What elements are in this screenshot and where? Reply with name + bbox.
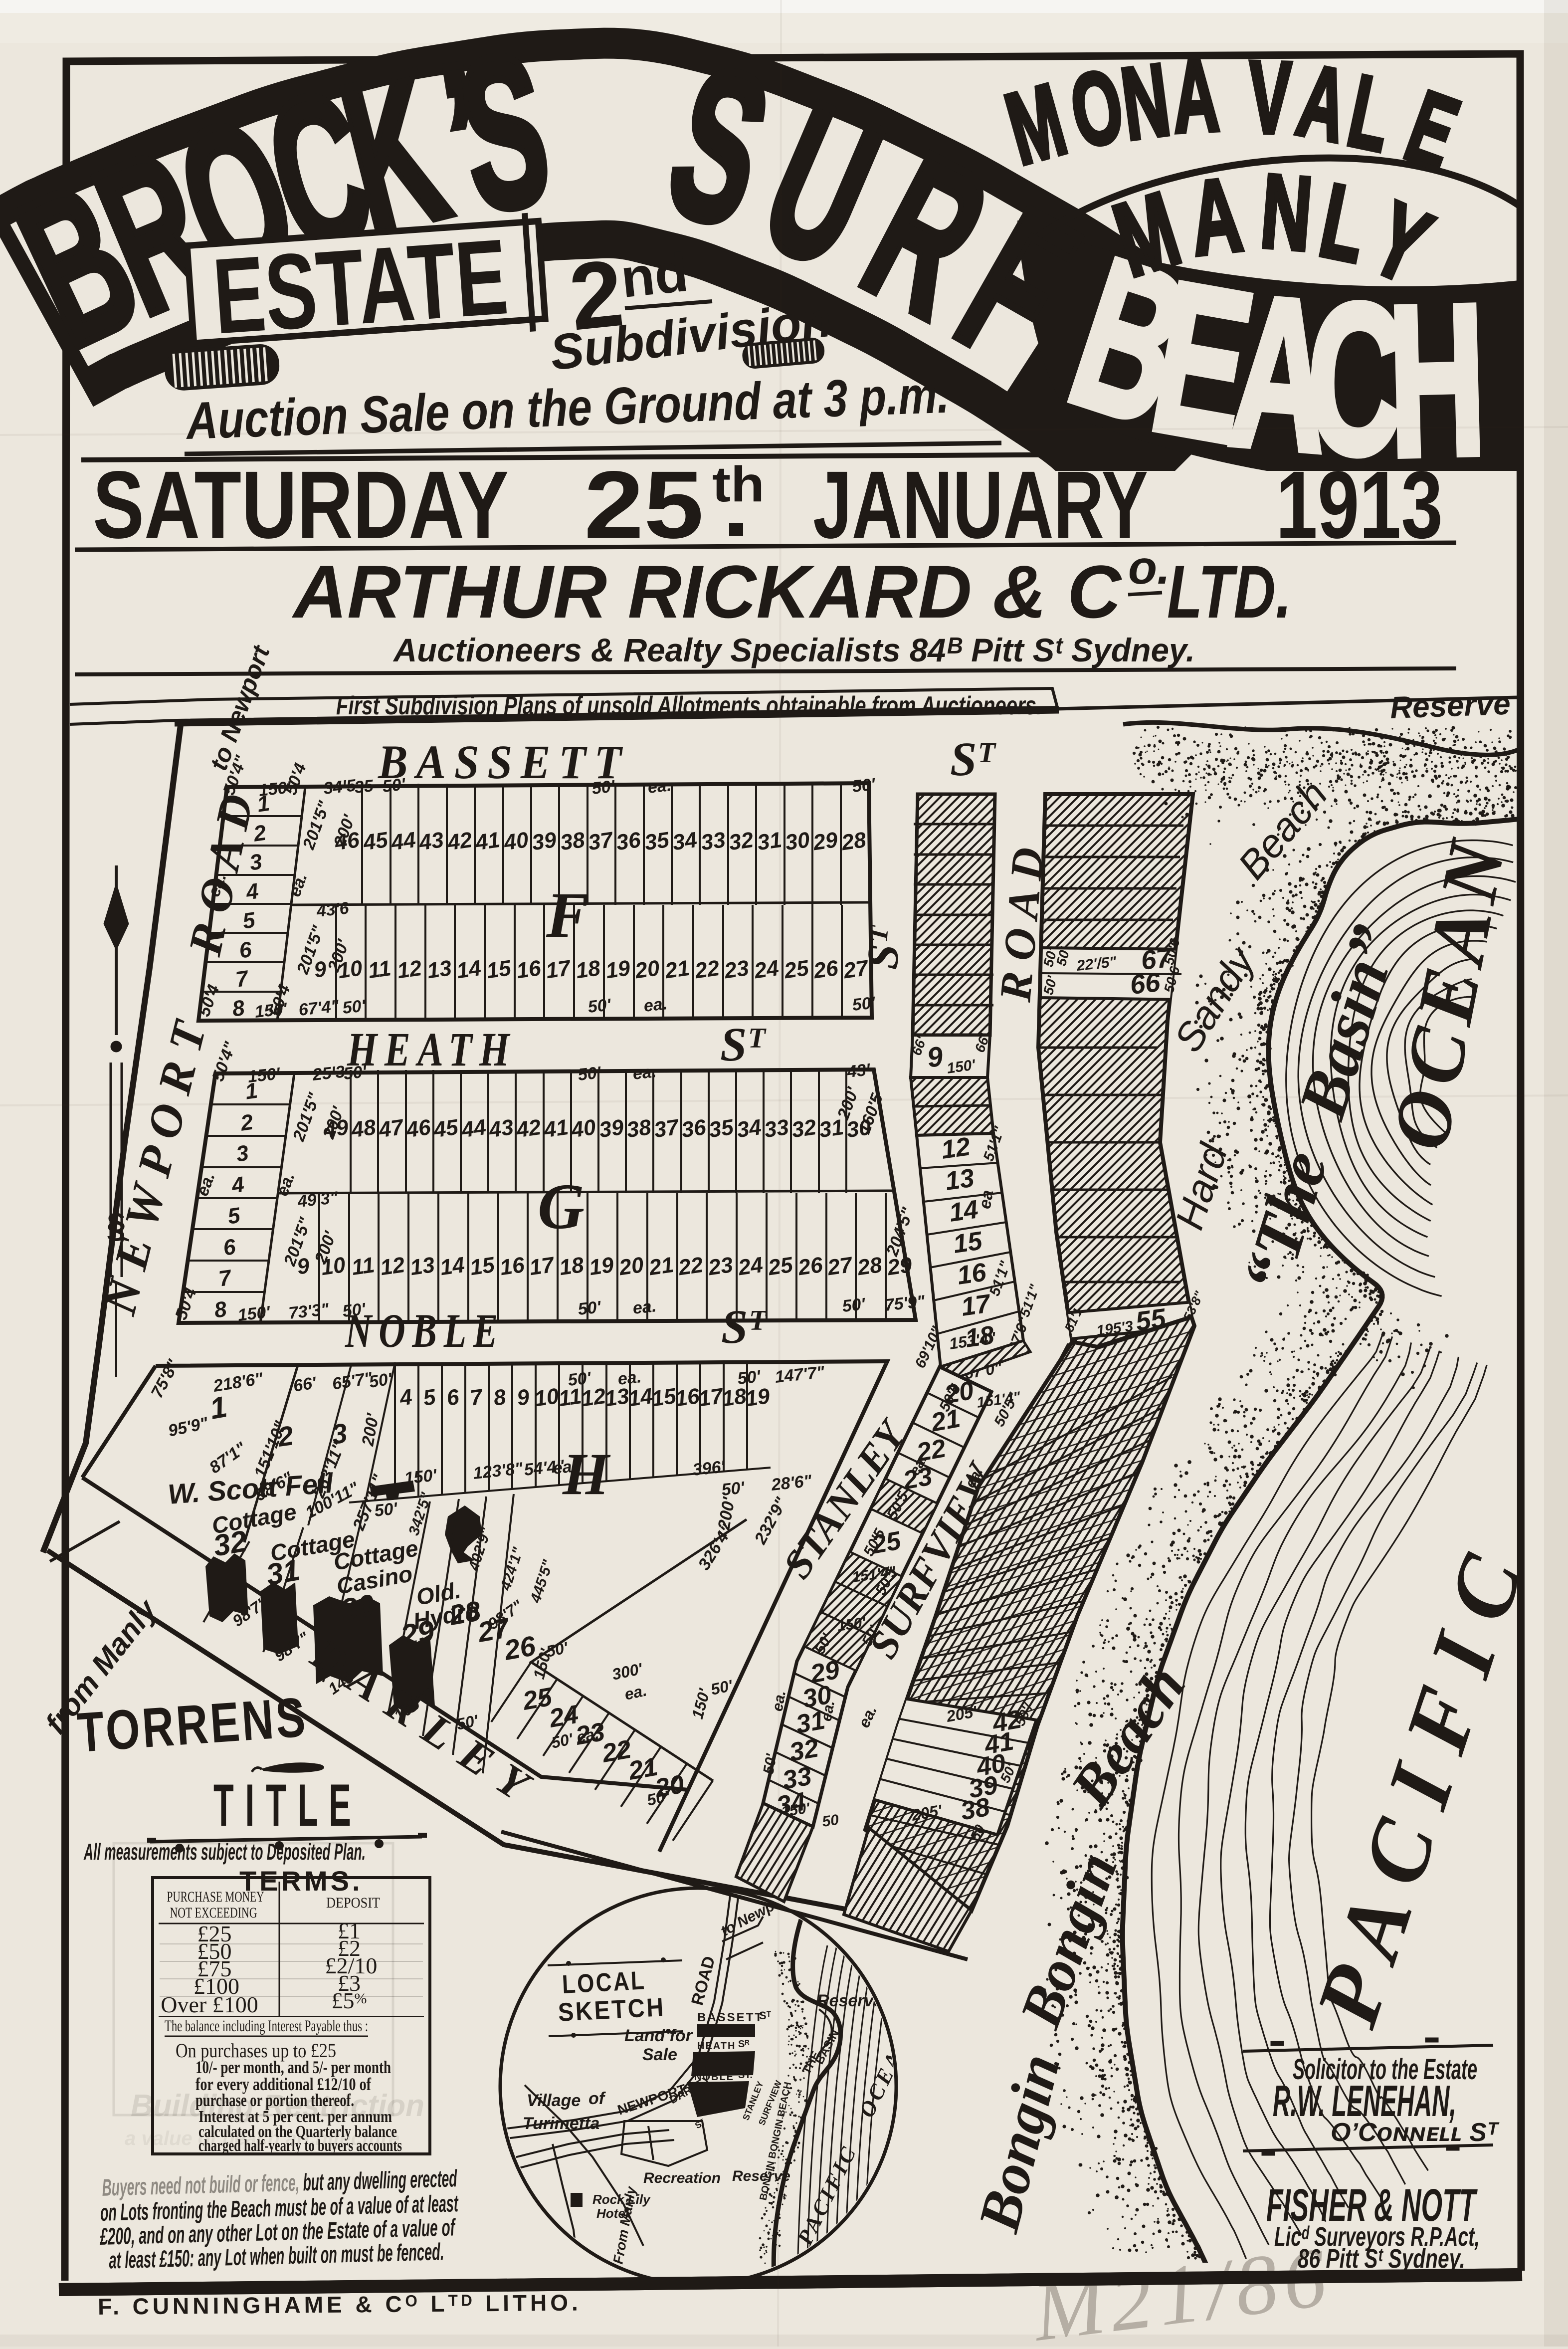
- svg-text:Village: Village: [527, 2091, 581, 2110]
- svg-text:G: G: [538, 1171, 585, 1243]
- svg-text:13: 13: [944, 1163, 976, 1196]
- svg-text:23: 23: [706, 1253, 734, 1280]
- svg-text:ea.: ea.: [643, 994, 668, 1016]
- svg-text:34'5: 34'5: [323, 776, 358, 798]
- svg-text:41: 41: [542, 1115, 570, 1142]
- svg-text:24: 24: [736, 1253, 764, 1280]
- svg-text:Auctioneers & Realty Specialis: Auctioneers & Realty Specialists 84ᴮ Pit…: [392, 632, 1195, 668]
- svg-text:11: 11: [367, 956, 392, 983]
- svg-text:26: 26: [811, 956, 840, 984]
- svg-text:27: 27: [825, 1253, 855, 1281]
- svg-text:ea: ea: [975, 1189, 997, 1211]
- svg-text:§: §: [107, 1206, 126, 1245]
- svg-text:18: 18: [558, 1253, 586, 1280]
- svg-text:47: 47: [377, 1115, 406, 1143]
- svg-text:17: 17: [528, 1253, 557, 1281]
- svg-text:O’Cᴏɴɴᴇʟʟ Sᵀ: O’Cᴏɴɴᴇʟʟ Sᵀ: [1331, 2118, 1500, 2147]
- svg-text:ea.: ea.: [632, 1062, 657, 1083]
- svg-text:13: 13: [408, 1253, 436, 1280]
- svg-text:37: 37: [587, 828, 615, 855]
- svg-text:ea.: ea.: [617, 1367, 642, 1389]
- svg-text:15: 15: [468, 1253, 496, 1280]
- svg-text:38: 38: [625, 1115, 653, 1142]
- svg-text:35: 35: [354, 776, 375, 797]
- svg-text:Sᵀ: Sᵀ: [759, 2009, 772, 2022]
- svg-text:11: 11: [350, 1253, 376, 1280]
- svg-text:46: 46: [404, 1115, 432, 1143]
- svg-text:NOBLE: NOBLE: [345, 1304, 505, 1357]
- svg-text:26: 26: [796, 1253, 824, 1281]
- svg-text:39: 39: [597, 1115, 625, 1142]
- svg-text:39: 39: [530, 828, 558, 855]
- svg-text:18: 18: [574, 956, 602, 983]
- svg-text:22: 22: [693, 956, 721, 984]
- svg-text:30: 30: [339, 1588, 377, 1627]
- svg-text:F: F: [546, 879, 589, 951]
- svg-text:50': 50': [591, 777, 617, 798]
- svg-text:A: A: [1170, 38, 1221, 154]
- svg-text:First Subdivision Plans of uns: First Subdivision Plans of unsold Allotm…: [336, 691, 1042, 720]
- svg-text:396': 396': [692, 1457, 727, 1480]
- svg-text:charged half-yearly to buyers: charged half-yearly to buyers accounts: [198, 2136, 402, 2155]
- svg-text:40: 40: [502, 828, 530, 855]
- svg-text:13: 13: [425, 956, 453, 983]
- svg-text:43'6: 43'6: [315, 898, 351, 921]
- svg-text:25'3: 25'3: [311, 1062, 346, 1084]
- svg-text:50': 50': [841, 1294, 867, 1316]
- svg-text:BASSETT: BASSETT: [697, 2011, 764, 2024]
- svg-text:29: 29: [398, 1614, 437, 1653]
- svg-text:th: th: [712, 456, 765, 512]
- svg-text:44: 44: [389, 828, 417, 855]
- svg-text:14: 14: [455, 956, 482, 983]
- svg-text:17: 17: [960, 1289, 993, 1322]
- svg-text:24: 24: [752, 956, 780, 983]
- svg-text:16: 16: [515, 956, 543, 983]
- svg-text:42: 42: [445, 828, 474, 855]
- svg-text:38: 38: [959, 1792, 992, 1826]
- svg-text:The balance including Interest: The balance including Interest Payable t…: [165, 2017, 368, 2035]
- svg-text:T I T L E: T I T L E: [213, 1772, 352, 1839]
- svg-text:SATURDAY: SATURDAY: [93, 451, 509, 558]
- svg-text:29: 29: [811, 828, 839, 855]
- svg-text:Sᵀ: Sᵀ: [721, 1300, 768, 1353]
- svg-text:50': 50': [851, 775, 877, 796]
- svg-text:Sale: Sale: [642, 2045, 677, 2064]
- svg-text:N: N: [1257, 152, 1316, 273]
- svg-text:150': 150': [247, 1064, 282, 1086]
- svg-text:36: 36: [680, 1115, 708, 1142]
- svg-text:40: 40: [569, 1115, 597, 1143]
- svg-text:50: 50: [821, 1812, 840, 1830]
- svg-text:50': 50': [737, 1367, 763, 1388]
- svg-text:Reserve: Reserve: [1389, 687, 1511, 725]
- svg-text:44: 44: [459, 1115, 487, 1142]
- svg-text:Land for: Land for: [624, 2026, 693, 2045]
- svg-text:48: 48: [349, 1115, 378, 1143]
- svg-text:SKETCH: SKETCH: [558, 1993, 666, 2027]
- svg-text:43: 43: [417, 828, 445, 855]
- svg-text:50': 50': [374, 1499, 399, 1520]
- svg-text:31: 31: [264, 1553, 302, 1592]
- svg-text:Sᴿ: Sᴿ: [738, 2039, 750, 2050]
- svg-text:50': 50': [368, 1369, 394, 1392]
- svg-text:Reserve: Reserve: [732, 2168, 790, 2184]
- svg-text:32: 32: [727, 828, 755, 855]
- svg-text:50': 50': [567, 1368, 593, 1390]
- svg-text:10: 10: [533, 1384, 561, 1411]
- svg-text:43': 43': [846, 1060, 872, 1081]
- svg-text:PURCHASE MONEY: PURCHASE MONEY: [167, 1889, 264, 1905]
- svg-text:ea.: ea.: [632, 1296, 657, 1318]
- svg-text:ST.: ST.: [738, 2070, 753, 2081]
- svg-text:16: 16: [956, 1258, 988, 1290]
- svg-text:ea.: ea.: [647, 776, 672, 797]
- svg-text:50': 50': [721, 1478, 747, 1499]
- svg-text:15: 15: [952, 1226, 984, 1259]
- svg-text:50': 50': [577, 1297, 603, 1319]
- svg-text:purchase or portion thereof.: purchase or portion thereof.: [196, 2090, 354, 2110]
- svg-text:34: 34: [735, 1115, 763, 1142]
- svg-text:ESTATE: ESTATE: [209, 216, 511, 357]
- svg-text:38: 38: [559, 828, 587, 855]
- svg-text:50': 50': [343, 1062, 369, 1083]
- svg-text:H: H: [562, 1441, 611, 1507]
- svg-text:35: 35: [643, 828, 671, 855]
- svg-text:66': 66': [292, 1373, 318, 1396]
- svg-text:19: 19: [744, 1384, 772, 1411]
- svg-text:37: 37: [652, 1115, 681, 1143]
- svg-text:35: 35: [707, 1115, 735, 1142]
- svg-text:12: 12: [379, 1253, 406, 1280]
- svg-text:of: of: [588, 2089, 606, 2108]
- svg-text:50': 50': [587, 995, 613, 1017]
- svg-text:42: 42: [514, 1115, 543, 1143]
- svg-text:28: 28: [839, 828, 868, 855]
- svg-text:JANUARY: JANUARY: [813, 451, 1148, 558]
- svg-text:12: 12: [940, 1132, 972, 1164]
- svg-text:45: 45: [361, 828, 390, 855]
- svg-text:Sᵀ: Sᵀ: [857, 923, 910, 971]
- svg-text:50': 50': [851, 993, 877, 1015]
- svg-text:20: 20: [633, 956, 661, 984]
- svg-text:25: 25: [782, 956, 810, 984]
- svg-text:V: V: [1247, 40, 1293, 156]
- svg-text:31: 31: [817, 1115, 845, 1142]
- svg-text:22: 22: [676, 1253, 705, 1281]
- svg-text:45: 45: [431, 1115, 460, 1143]
- svg-text:50': 50': [382, 775, 407, 796]
- svg-text:19: 19: [588, 1253, 615, 1280]
- svg-text:50': 50': [342, 996, 368, 1018]
- svg-text:Over £100: Over £100: [161, 1992, 258, 2017]
- svg-text:32: 32: [790, 1115, 818, 1142]
- svg-text:66: 66: [1129, 967, 1162, 1000]
- svg-text:30: 30: [784, 828, 811, 855]
- svg-text:50': 50': [342, 1299, 368, 1321]
- svg-text:LTD.: LTD.: [1167, 550, 1292, 634]
- svg-text:21: 21: [647, 1253, 675, 1280]
- svg-text:HEATH: HEATH: [347, 1023, 517, 1076]
- svg-text:17: 17: [544, 956, 573, 984]
- svg-text:33: 33: [763, 1115, 790, 1142]
- svg-text:Turimetta: Turimetta: [523, 2114, 599, 2133]
- svg-text:14: 14: [948, 1195, 980, 1227]
- svg-text:34: 34: [671, 828, 698, 855]
- svg-text:43: 43: [487, 1115, 515, 1142]
- svg-text:32: 32: [211, 1524, 249, 1563]
- svg-text:HEATH: HEATH: [697, 2041, 736, 2052]
- svg-text:36: 36: [614, 828, 642, 855]
- svg-text:41: 41: [473, 828, 501, 855]
- svg-text:Recreation: Recreation: [643, 2170, 721, 2186]
- svg-text:150': 150': [237, 1302, 272, 1325]
- svg-text:14: 14: [438, 1253, 466, 1280]
- svg-text:16: 16: [498, 1253, 526, 1280]
- svg-text:19: 19: [604, 956, 632, 983]
- svg-text:o.: o.: [1128, 541, 1170, 594]
- svg-text:25: 25: [584, 451, 704, 558]
- svg-text:20: 20: [617, 1253, 645, 1281]
- svg-text:Sᵀ: Sᵀ: [720, 1018, 767, 1071]
- svg-text:50': 50': [577, 1063, 603, 1084]
- svg-text:NOT EXCEEDING: NOT EXCEEDING: [170, 1905, 257, 1921]
- svg-text:28: 28: [855, 1253, 884, 1281]
- svg-text:15: 15: [485, 956, 513, 983]
- svg-text:33: 33: [699, 828, 727, 855]
- svg-text:ARTHUR RICKARD & C: ARTHUR RICKARD & C: [291, 550, 1123, 634]
- svg-text:Sᵀ: Sᵀ: [950, 732, 996, 786]
- svg-text:12: 12: [395, 956, 423, 983]
- svg-text:DEPOSIT: DEPOSIT: [326, 1895, 380, 1911]
- svg-text:21: 21: [663, 956, 691, 983]
- svg-text:23: 23: [722, 956, 750, 983]
